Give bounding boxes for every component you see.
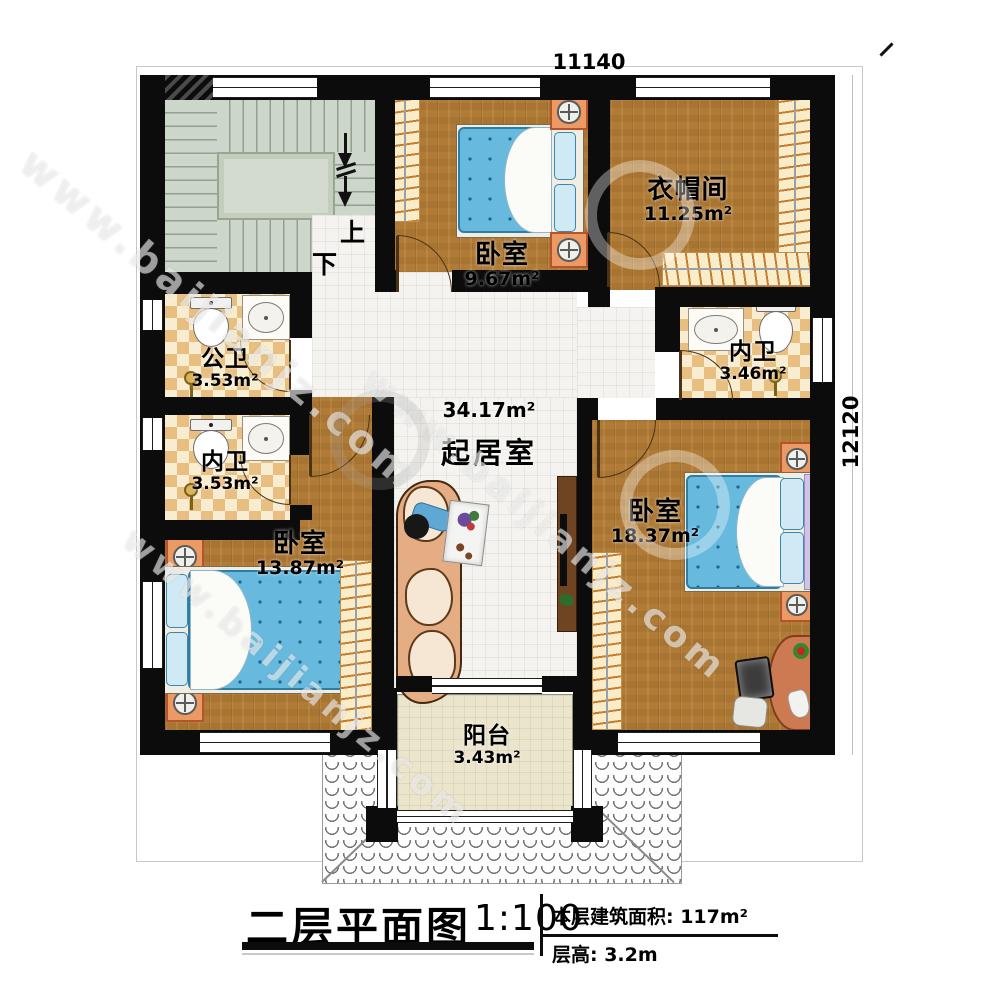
- stair-up-label: 上: [340, 213, 365, 249]
- floor-area-text: 本层建筑面积: 117m²: [552, 902, 748, 929]
- person-head: [404, 514, 429, 539]
- pillow: [166, 574, 188, 628]
- sink-icon: [242, 295, 290, 340]
- window: [213, 77, 317, 98]
- dimension-top: 11140: [544, 50, 634, 74]
- room-label-ensuite-right: 内卫 3.46m²: [696, 340, 810, 383]
- wall: [375, 75, 395, 292]
- wall: [290, 272, 312, 338]
- desk-flower-icon: [793, 643, 809, 659]
- wall: [375, 270, 397, 292]
- info-rule: [541, 934, 778, 937]
- balcony-pillar: [366, 806, 398, 842]
- balcony-railing-side: [573, 750, 592, 808]
- wall: [140, 272, 312, 294]
- flower-icon: [466, 522, 475, 531]
- stair-landing: [217, 152, 335, 220]
- wardrobe: [778, 96, 812, 254]
- stair-arrow-icon: [338, 192, 352, 207]
- wall: [290, 505, 312, 520]
- floor-height-text: 层高: 3.2m: [552, 940, 658, 967]
- wardrobe: [662, 252, 812, 286]
- room-label-balcony: 阳台 3.43m²: [427, 724, 547, 767]
- stair-down-label: 下: [312, 245, 337, 281]
- window: [200, 732, 330, 753]
- wall: [377, 688, 397, 750]
- pillow: [554, 132, 576, 180]
- sofa-cushion: [405, 568, 453, 626]
- window: [142, 418, 163, 450]
- desk-chair: [732, 695, 769, 728]
- wardrobe: [340, 560, 372, 732]
- wall: [656, 398, 835, 420]
- balcony-railing: [397, 810, 573, 823]
- balcony-pillar: [571, 806, 603, 842]
- pillow: [780, 478, 804, 530]
- room-label-bedroom-right: 卧室 18.37m²: [595, 498, 715, 547]
- stair-flight-left: [165, 100, 217, 272]
- wall: [140, 397, 310, 415]
- window: [142, 300, 163, 330]
- wardrobe: [592, 552, 622, 730]
- room-label-public-bathroom: 公卫 3.53m²: [170, 347, 280, 390]
- wall: [660, 287, 835, 307]
- window: [636, 77, 770, 98]
- pillow: [166, 632, 188, 686]
- room-label-cloakroom: 衣帽间 11.25m²: [618, 176, 758, 225]
- floorplan-canvas: 11140 12120: [0, 0, 1000, 990]
- pillow: [554, 184, 576, 232]
- flower-icon: [469, 510, 480, 521]
- title-underline-thin: [242, 953, 534, 955]
- lamp-icon: [173, 691, 198, 716]
- wall: [372, 397, 394, 415]
- wall: [396, 676, 432, 692]
- lamp-icon: [786, 448, 808, 470]
- title-underline: [242, 942, 534, 950]
- nightstand: [780, 442, 814, 476]
- lamp-icon: [786, 594, 808, 616]
- coffee-table: [442, 500, 489, 566]
- window: [618, 732, 760, 753]
- dimension-right: 12120: [839, 387, 863, 477]
- window: [142, 582, 163, 668]
- sliding-door: [432, 678, 542, 694]
- wall: [573, 688, 592, 750]
- room-label-bedroom-top: 卧室 9.67m²: [432, 241, 572, 290]
- window: [430, 77, 540, 98]
- room-label-living-room: 34.17m² 起居室: [414, 400, 564, 469]
- lamp-icon: [557, 100, 582, 123]
- title-divider: [540, 894, 543, 956]
- room-label-bedroom-left: 卧室 13.87m²: [240, 530, 360, 579]
- stair-flight-top: [217, 100, 377, 152]
- wall: [577, 398, 592, 688]
- dimension-tick-icon: [879, 42, 893, 56]
- balcony-railing-side: [377, 750, 397, 808]
- hallway-extension-floor: [577, 307, 655, 398]
- pillow: [780, 532, 804, 584]
- nightstand: [780, 588, 814, 622]
- window: [812, 318, 833, 382]
- cup-icon: [456, 543, 465, 552]
- room-label-ensuite-left: 内卫 3.53m²: [170, 450, 280, 493]
- tv-icon: [560, 514, 567, 586]
- toilet-icon: [186, 297, 236, 346]
- wall: [655, 287, 680, 352]
- cup-icon: [465, 552, 473, 560]
